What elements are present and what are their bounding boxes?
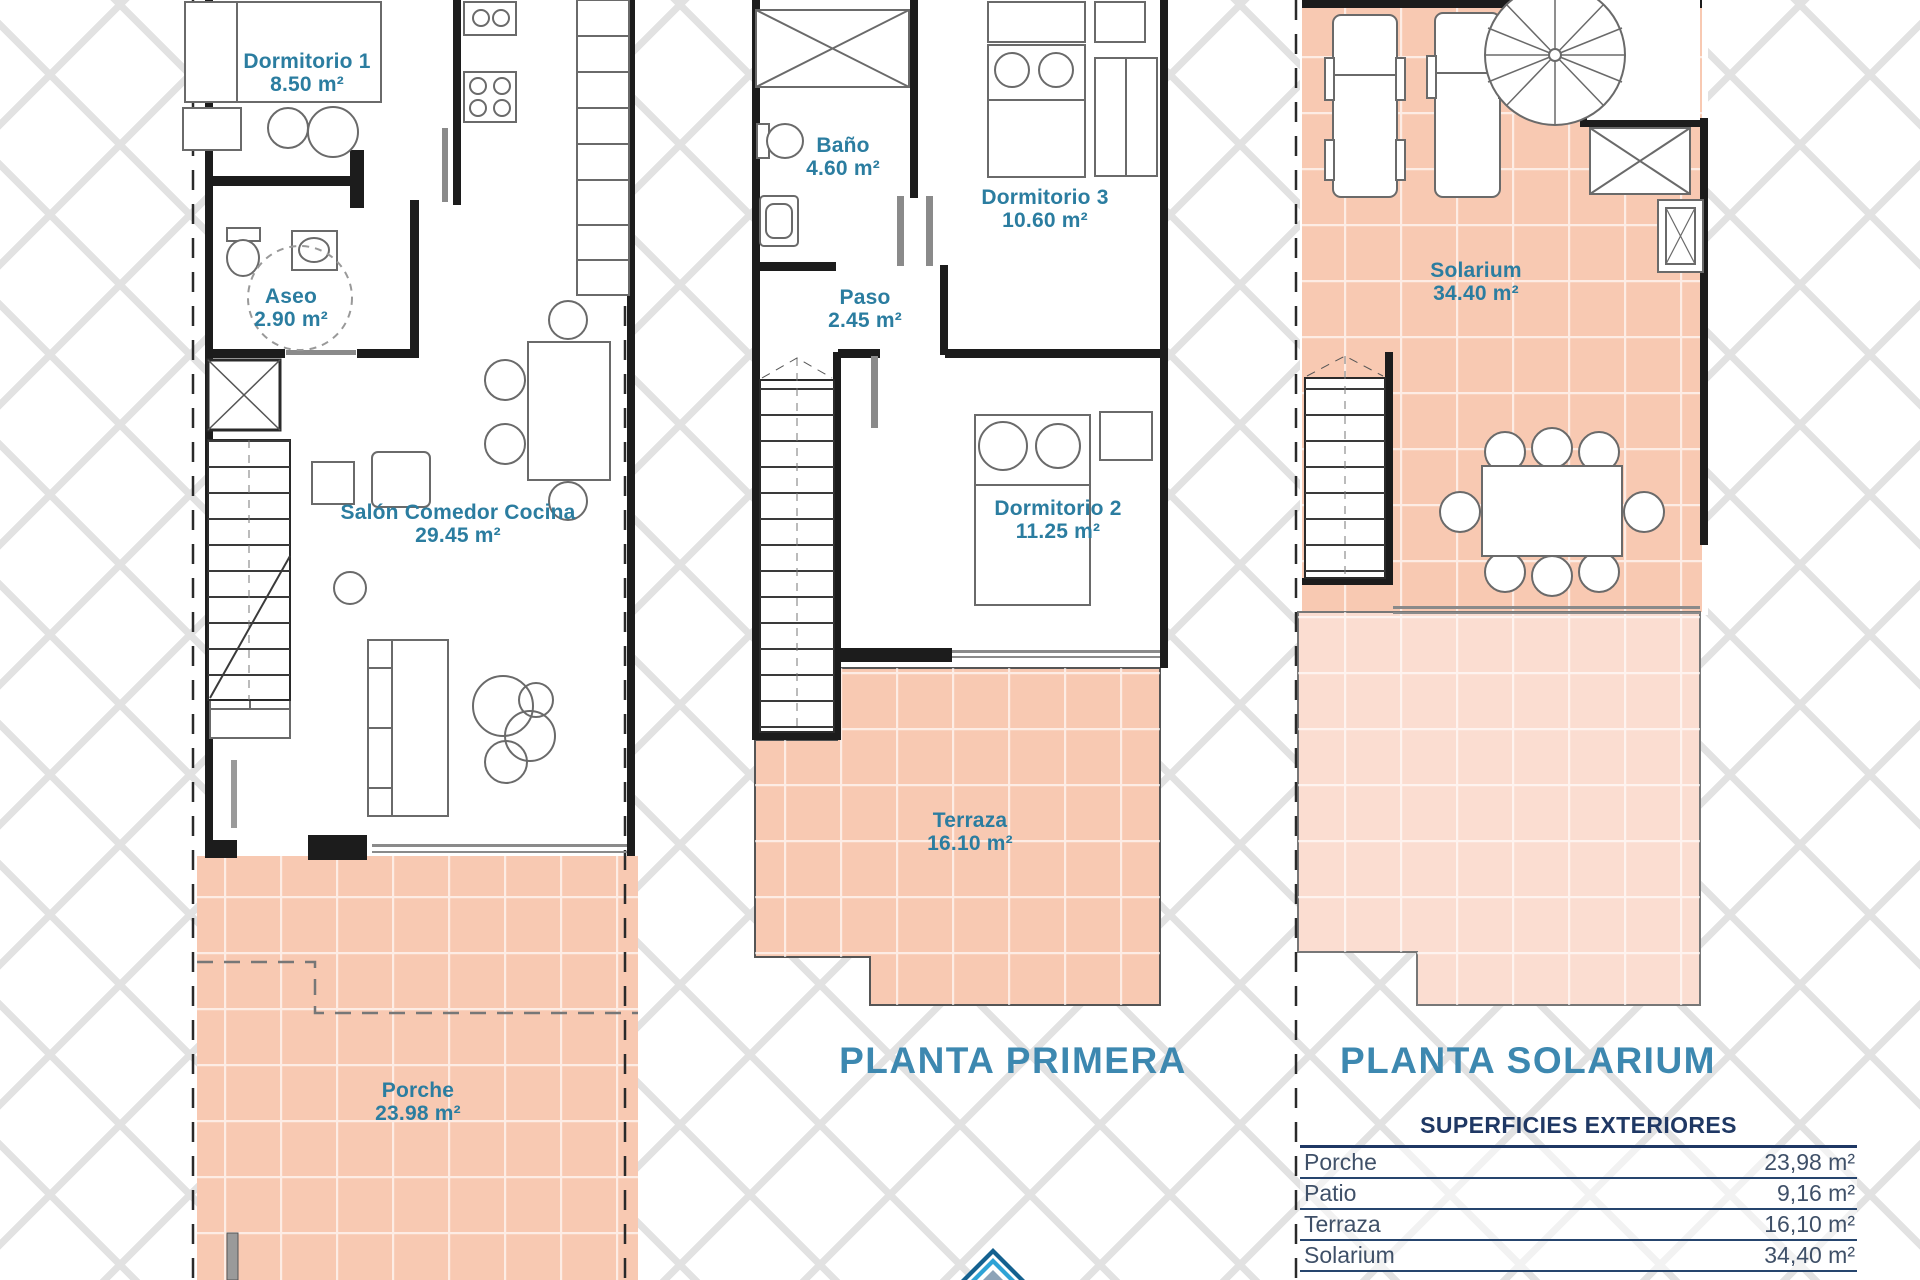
room-label-paso: Paso 2.45 m² <box>828 286 902 332</box>
room-label-terraza: Terraza 16.10 m² <box>927 809 1013 855</box>
plan-title-solarium: PLANTA SOLARIUM <box>1340 1040 1716 1082</box>
toilet-icon <box>227 228 260 276</box>
armchair-icon <box>372 452 430 507</box>
room-label-porche: Porche 23.98 m² <box>375 1079 461 1125</box>
row-label: Porche <box>1300 1149 1377 1176</box>
plan-ground-stairs <box>208 360 290 700</box>
room-label-dormitorio-1: Dormitorio 1 8.50 m² <box>243 50 370 96</box>
porche-tiles <box>197 856 638 1280</box>
row-value: 23,98 m² <box>1764 1149 1857 1176</box>
shaft-icon <box>1658 200 1703 272</box>
table-row: Terraza 16,10 m² <box>1300 1210 1857 1241</box>
room-label-solarium: Solarium 34.40 m² <box>1430 259 1521 305</box>
row-label: Terraza <box>1300 1211 1381 1238</box>
washbasin-icon <box>760 196 798 246</box>
table-row: Porche 23,98 m² <box>1300 1148 1857 1179</box>
exterior-surfaces-table: SUPERFICIES EXTERIORES Porche 23,98 m² P… <box>1300 1112 1857 1272</box>
row-value: 16,10 m² <box>1764 1211 1857 1238</box>
bathtub-icon <box>756 10 909 87</box>
stove-icon <box>464 72 516 122</box>
table-row: Solarium 34,40 m² <box>1300 1241 1857 1272</box>
sun-lounger-icon <box>1325 15 1405 197</box>
table-row: Patio 9,16 m² <box>1300 1179 1857 1210</box>
plan-first-stairs <box>760 358 834 732</box>
floorplan-sheet: Dormitorio 1 8.50 m² Aseo 2.90 m² Salón … <box>0 0 1920 1280</box>
row-label: Patio <box>1300 1180 1356 1207</box>
parasol-icon <box>1485 0 1625 125</box>
toilet-icon <box>757 124 803 158</box>
sofa-icon <box>368 640 448 816</box>
row-value: 34,40 m² <box>1764 1242 1857 1269</box>
nightstand-icon <box>1100 412 1152 460</box>
plan-solarium-stairs <box>1305 356 1385 578</box>
table-title: SUPERFICIES EXTERIORES <box>1300 1112 1857 1148</box>
skylight-icon <box>1590 128 1690 194</box>
row-label: Solarium <box>1300 1242 1395 1269</box>
nightstand-icon <box>1095 2 1145 42</box>
wardrobe-icon <box>1095 58 1157 176</box>
row-value: 9,16 m² <box>1777 1180 1857 1207</box>
diamond-logo <box>941 1248 1045 1280</box>
room-label-dormitorio-3: Dormitorio 3 10.60 m² <box>981 186 1108 232</box>
room-label-salon: Salón Comedor Cocina 29.45 m² <box>340 501 575 547</box>
bed-icon <box>988 2 1085 177</box>
washbasin-icon <box>292 231 337 270</box>
kitchen-counter <box>577 0 629 295</box>
floorplan-drawing <box>0 0 1920 1280</box>
coffee-table-icon <box>312 462 354 504</box>
room-label-dormitorio-2: Dormitorio 2 11.25 m² <box>994 497 1121 543</box>
plan-title-primera: PLANTA PRIMERA <box>839 1040 1187 1082</box>
side-table-icon <box>334 572 366 604</box>
room-label-bano: Baño 4.60 m² <box>806 134 880 180</box>
kitchen-sink-icon <box>464 2 516 35</box>
room-label-aseo: Aseo 2.90 m² <box>254 285 328 331</box>
